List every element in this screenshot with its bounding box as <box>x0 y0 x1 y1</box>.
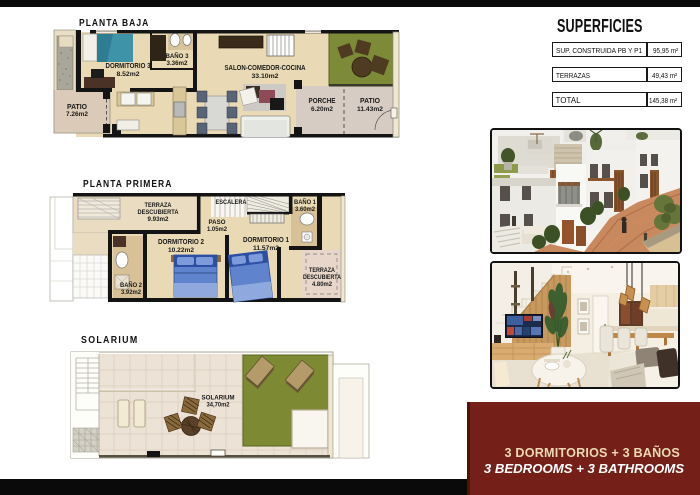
svg-text:3.60m2: 3.60m2 <box>295 207 316 213</box>
svg-text:SALON-COMEDOR-COCINA: SALON-COMEDOR-COCINA <box>225 65 306 72</box>
svg-text:34,70m2: 34,70m2 <box>207 402 230 409</box>
svg-text:BAÑO 1: BAÑO 1 <box>294 197 316 206</box>
svg-text:10.22m2: 10.22m2 <box>168 247 194 254</box>
svg-text:9.93m2: 9.93m2 <box>148 217 170 223</box>
svg-text:BAÑO 3: BAÑO 3 <box>166 51 189 60</box>
svg-text:DORMITORIO 3: DORMITORIO 3 <box>106 63 151 70</box>
svg-text:SOLARIUM: SOLARIUM <box>202 395 235 402</box>
svg-text:33.10m2: 33.10m2 <box>252 73 279 80</box>
svg-text:8.52m2: 8.52m2 <box>117 71 140 78</box>
svg-text:DESCUBIERTA: DESCUBIERTA <box>303 274 341 281</box>
svg-text:1.05m2: 1.05m2 <box>207 227 228 233</box>
svg-text:3.36m2: 3.36m2 <box>167 61 189 67</box>
svg-text:11.57m2: 11.57m2 <box>253 245 279 252</box>
svg-text:DORMITORIO 1: DORMITORIO 1 <box>243 237 289 244</box>
svg-text:7.26m2: 7.26m2 <box>66 111 88 118</box>
svg-text:BAÑO 2: BAÑO 2 <box>120 280 142 289</box>
svg-text:PATIO: PATIO <box>67 104 88 111</box>
svg-text:11.43m2: 11.43m2 <box>357 106 383 113</box>
svg-text:TERRAZA: TERRAZA <box>309 267 335 274</box>
svg-text:DORMITORIO 2: DORMITORIO 2 <box>158 239 204 246</box>
svg-text:PATIO: PATIO <box>360 98 381 105</box>
svg-text:ESCALERA: ESCALERA <box>216 199 247 206</box>
svg-text:TERRAZA: TERRAZA <box>145 202 172 209</box>
svg-text:3.92m2: 3.92m2 <box>121 290 142 296</box>
svg-text:PASO: PASO <box>209 219 226 226</box>
svg-text:4.80m2: 4.80m2 <box>312 282 333 288</box>
svg-text:PORCHE: PORCHE <box>309 98 336 105</box>
svg-text:6.20m2: 6.20m2 <box>311 106 333 113</box>
svg-text:DESCUBIERTA: DESCUBIERTA <box>138 209 179 216</box>
